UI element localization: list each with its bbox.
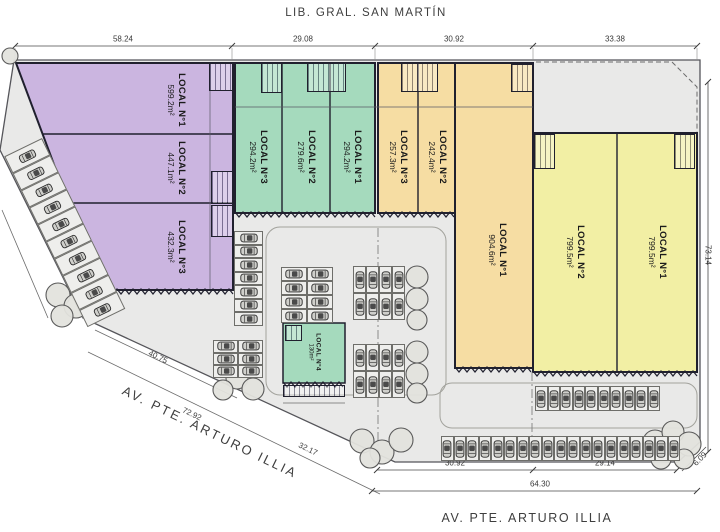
parking-stall <box>213 353 238 366</box>
parking-stall <box>307 309 333 323</box>
parking-stall <box>379 293 392 320</box>
unit-label-purple-1: LOCAL N°1 599.2m² <box>165 73 187 127</box>
unit-label-yellow-1: LOCAL N°1 799.5m² <box>646 225 668 279</box>
car-icon <box>34 182 54 198</box>
parking-stall <box>643 436 656 461</box>
parking-stall <box>213 365 238 378</box>
restroom-core <box>401 63 438 92</box>
car-icon <box>311 312 329 321</box>
parking-stall <box>441 436 454 461</box>
restroom-core <box>261 63 282 93</box>
car-icon <box>240 314 258 323</box>
car-icon <box>368 271 377 289</box>
parking-stall <box>366 344 379 371</box>
parking-stall <box>573 386 586 411</box>
car-icon <box>518 440 527 458</box>
parking-stall <box>353 266 366 293</box>
car-icon <box>217 342 235 351</box>
car-icon <box>531 440 540 458</box>
unit-label-yellow-2: LOCAL N°2 799.5m² <box>564 225 586 279</box>
parking-stall <box>307 295 333 309</box>
car-icon <box>51 216 71 232</box>
dimension-label: 33.38 <box>605 35 625 44</box>
car-icon <box>67 250 87 266</box>
car-icon <box>92 301 112 317</box>
car-icon <box>637 390 646 408</box>
car-icon <box>242 354 260 363</box>
parking-stall <box>366 293 379 320</box>
car-icon <box>285 298 303 307</box>
unit-label-orange-1: LOCAL N°1 904.6m² <box>486 223 508 277</box>
car-icon <box>381 298 390 316</box>
car-icon <box>612 390 621 408</box>
car-icon <box>455 440 464 458</box>
parking-cluster-mid-east-lower <box>353 344 405 398</box>
tree-icon <box>407 383 427 403</box>
parking-stall <box>392 266 405 293</box>
car-icon <box>562 390 571 408</box>
parking-stall <box>491 436 504 461</box>
parking-stall <box>366 266 379 293</box>
car-icon <box>285 312 303 321</box>
parking-stall <box>234 231 263 245</box>
parking-stall <box>585 386 598 411</box>
parking-stall <box>635 386 648 411</box>
restroom-core <box>211 171 233 204</box>
car-icon <box>394 349 403 367</box>
car-icon <box>240 247 258 256</box>
car-icon <box>644 440 653 458</box>
dimension-label: 29.08 <box>293 35 313 44</box>
unit-label-purple-2: LOCAL N°2 447.1m² <box>165 141 187 195</box>
dimension-label: 64.30 <box>530 480 550 489</box>
parking-stall <box>392 293 405 320</box>
unit-label-orange-2: LOCAL N°2 242.4m² <box>426 130 448 184</box>
car-icon <box>506 440 515 458</box>
car-icon <box>381 349 390 367</box>
building-orange-large <box>455 63 533 368</box>
car-icon <box>381 271 390 289</box>
parking-cluster-purple-east-column <box>234 231 263 326</box>
car-icon <box>594 440 603 458</box>
car-icon <box>556 440 565 458</box>
restroom-core <box>534 134 555 169</box>
parking-stall <box>529 436 542 461</box>
parking-stall <box>668 436 681 461</box>
car-icon <box>217 354 235 363</box>
car-icon <box>549 390 558 408</box>
parking-stall <box>479 436 492 461</box>
dimension-label: 30.92 <box>444 35 464 44</box>
car-icon <box>240 287 258 296</box>
parking-stall <box>281 295 307 309</box>
parking-stall <box>234 312 263 326</box>
car-icon <box>381 376 390 394</box>
unit-label-purple-3: LOCAL N°3 432.3m² <box>165 220 187 274</box>
car-icon <box>537 390 546 408</box>
car-icon <box>84 284 104 300</box>
car-icon <box>632 440 641 458</box>
car-icon <box>368 349 377 367</box>
car-icon <box>285 284 303 293</box>
car-icon <box>394 376 403 394</box>
car-icon <box>240 233 258 242</box>
car-icon <box>17 148 37 164</box>
tree-icon <box>407 310 427 330</box>
unit-label-green-2: LOCAL N°2 279.6m² <box>295 130 317 184</box>
parking-stall <box>554 436 567 461</box>
car-icon <box>493 440 502 458</box>
parking-stall <box>623 386 636 411</box>
parking-stall <box>281 309 307 323</box>
car-icon <box>217 367 235 376</box>
car-icon <box>355 271 364 289</box>
street-label-san-martin: LIB. GRAL. SAN MARTÍN <box>285 7 446 19</box>
parking-stall <box>281 267 307 281</box>
car-icon <box>624 390 633 408</box>
car-icon <box>443 440 452 458</box>
car-icon <box>240 260 258 269</box>
parking-cluster-southwest-cluster <box>213 340 263 378</box>
parking-cluster-mid-east-upper <box>353 266 405 320</box>
dimension-label: 73.14 <box>704 245 713 265</box>
car-icon <box>26 165 46 181</box>
parking-stall <box>234 272 263 286</box>
parking-stall <box>353 293 366 320</box>
parking-stall <box>454 436 467 461</box>
car-icon <box>240 274 258 283</box>
parking-cluster-inner-south-row <box>535 386 660 411</box>
tree-icon <box>2 48 18 64</box>
car-icon <box>394 271 403 289</box>
service-strip <box>283 385 345 397</box>
car-icon <box>581 440 590 458</box>
tree-icon <box>406 341 428 363</box>
car-icon <box>311 298 329 307</box>
car-icon <box>587 390 596 408</box>
car-icon <box>670 440 679 458</box>
parking-stall <box>392 371 405 398</box>
unit-label-orange-3: LOCAL N°3 257.3m² <box>387 130 409 184</box>
parking-stall <box>234 245 263 259</box>
car-icon <box>285 270 303 279</box>
parking-stall <box>307 281 333 295</box>
parking-stall <box>281 281 307 295</box>
parking-stall <box>560 386 573 411</box>
car-icon <box>76 267 96 283</box>
parking-stall <box>353 344 366 371</box>
parking-stall <box>234 285 263 299</box>
parking-cluster-center-cluster <box>281 267 333 323</box>
parking-stall <box>630 436 643 461</box>
restroom-core <box>285 325 302 341</box>
restroom-core <box>211 205 233 237</box>
car-icon <box>311 284 329 293</box>
car-icon <box>240 301 258 310</box>
parking-stall <box>379 371 392 398</box>
parking-stall <box>307 267 333 281</box>
tree-icon <box>213 380 233 400</box>
parking-stall <box>617 436 630 461</box>
tree-icon <box>51 305 73 327</box>
car-icon <box>657 440 666 458</box>
car-icon <box>242 342 260 351</box>
car-icon <box>619 440 628 458</box>
tree-icon <box>406 363 428 385</box>
restroom-core <box>307 63 346 92</box>
car-icon <box>569 440 578 458</box>
car-icon <box>574 390 583 408</box>
site-plan: LOCAL N°1 599.2m² LOCAL N°2 447.1m² LOCA… <box>0 0 720 532</box>
parking-stall <box>605 436 618 461</box>
street-label-arturo-illia-bottom: AV. PTE. ARTURO ILLIA <box>442 511 613 525</box>
tree-icon <box>360 448 380 468</box>
parking-stall <box>610 386 623 411</box>
unit-label-local4: LOCAL N°4 130m² <box>307 333 322 371</box>
restroom-core <box>209 63 233 91</box>
tree-icon <box>406 288 428 310</box>
parking-stall <box>234 258 263 272</box>
parking-stall <box>598 386 611 411</box>
car-icon <box>368 376 377 394</box>
car-icon <box>311 270 329 279</box>
restroom-core <box>511 64 533 92</box>
parking-stall <box>392 344 405 371</box>
car-icon <box>607 440 616 458</box>
parking-stall <box>580 436 593 461</box>
parking-stall <box>379 266 392 293</box>
car-icon <box>649 390 658 408</box>
building-yellow <box>533 133 697 372</box>
car-icon <box>481 440 490 458</box>
parking-stall <box>366 371 379 398</box>
unit-label-green-1: LOCAL N°1 294.2m² <box>341 130 363 184</box>
car-icon <box>544 440 553 458</box>
car-icon <box>355 298 364 316</box>
parking-stall <box>466 436 479 461</box>
parking-stall <box>517 436 530 461</box>
parking-stall <box>542 436 555 461</box>
parking-cluster-street-south-row <box>441 436 680 461</box>
parking-stall <box>238 365 263 378</box>
car-icon <box>242 367 260 376</box>
parking-stall <box>592 436 605 461</box>
unit-label-green-3: LOCAL N°3 294.2m² <box>247 130 269 184</box>
parking-stall <box>504 436 517 461</box>
parking-stall <box>567 436 580 461</box>
dimension-label: 58.24 <box>113 35 133 44</box>
parking-stall <box>234 299 263 313</box>
parking-stall <box>655 436 668 461</box>
parking-stall <box>535 386 548 411</box>
car-icon <box>394 298 403 316</box>
car-icon <box>42 199 62 215</box>
tree-icon <box>406 266 428 288</box>
parking-stall <box>353 371 366 398</box>
parking-stall <box>648 386 661 411</box>
car-icon <box>368 298 377 316</box>
car-icon <box>468 440 477 458</box>
car-icon <box>355 376 364 394</box>
tree-icon <box>242 378 264 400</box>
car-icon <box>599 390 608 408</box>
parking-stall <box>213 340 238 353</box>
tree-icon <box>389 428 413 452</box>
parking-stall <box>548 386 561 411</box>
car-icon <box>59 233 79 249</box>
parking-stall <box>238 340 263 353</box>
car-icon <box>355 349 364 367</box>
parking-stall <box>379 344 392 371</box>
restroom-core <box>674 134 695 169</box>
parking-stall <box>238 353 263 366</box>
